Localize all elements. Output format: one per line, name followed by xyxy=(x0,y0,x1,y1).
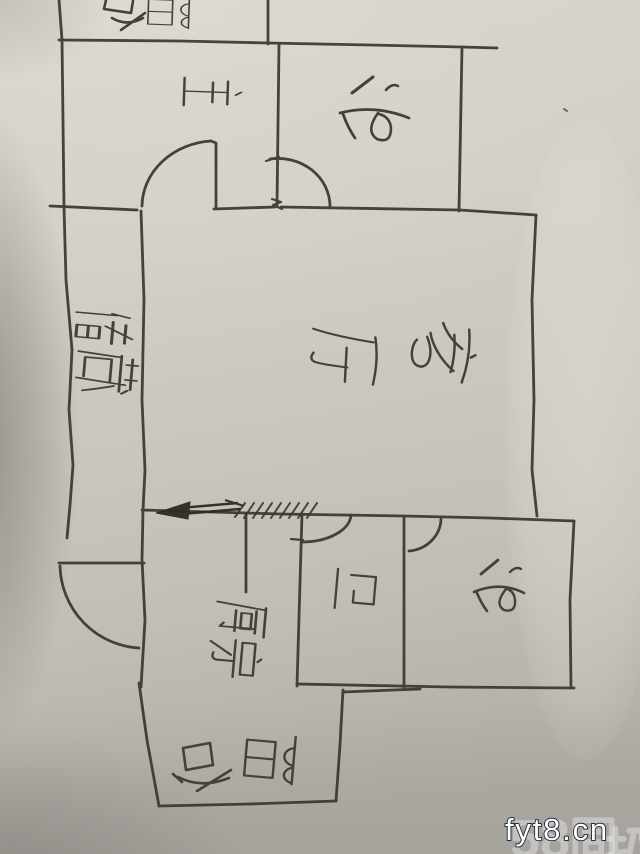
svg-text:fyt8.cn: fyt8.cn xyxy=(505,812,609,847)
